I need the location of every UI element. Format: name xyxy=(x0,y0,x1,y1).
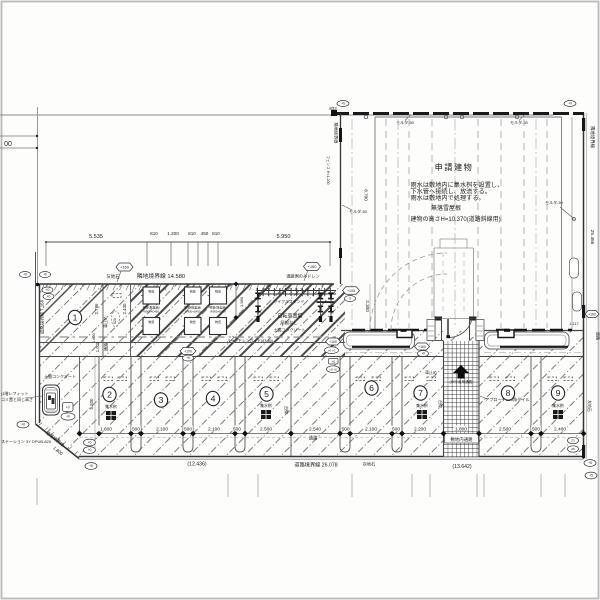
svg-text:サイクルスタンド: サイクルスタンド xyxy=(274,299,305,304)
svg-text:+5: +5 xyxy=(589,474,593,478)
svg-text:隣地境界線 14.580: 隣地境界線 14.580 xyxy=(137,272,185,280)
svg-text:+0: +0 xyxy=(88,448,92,452)
svg-text:5.535: 5.535 xyxy=(89,234,103,240)
svg-text:通路: 通路 xyxy=(103,342,110,351)
svg-text:+0 +0: +0 +0 xyxy=(328,348,336,352)
svg-text:+160: +160 xyxy=(588,312,596,316)
svg-text:白線: 白線 xyxy=(284,406,289,414)
svg-text:物置: 物置 xyxy=(215,319,221,324)
svg-text:土間コンクリート: 土間コンクリート xyxy=(44,373,76,379)
svg-text:+160: +160 xyxy=(329,340,337,344)
svg-text:2.300: 2.300 xyxy=(365,300,370,312)
svg-text:道路境界線 26.078: 道路境界線 26.078 xyxy=(294,461,337,469)
svg-text:+0: +0 xyxy=(88,441,92,445)
svg-text:物置: 物置 xyxy=(190,289,196,294)
svg-text:+0: +0 xyxy=(66,406,70,410)
svg-text:車止め: 車止め xyxy=(103,316,108,328)
svg-text:(歩行者用通路): (歩行者用通路) xyxy=(450,379,474,384)
svg-text:1.800: 1.800 xyxy=(92,333,96,343)
svg-text:2.200: 2.200 xyxy=(414,426,426,432)
svg-text:500: 500 xyxy=(132,426,140,432)
svg-text:2.500: 2.500 xyxy=(499,426,511,432)
svg-text:+0: +0 xyxy=(66,415,70,419)
svg-text:+0: +0 xyxy=(186,356,190,360)
svg-text:集水桝: 集水桝 xyxy=(260,403,272,408)
svg-text:1.117: 1.117 xyxy=(569,322,578,326)
svg-text:W900×D450: W900×D450 xyxy=(210,310,226,314)
svg-text:500: 500 xyxy=(341,426,349,432)
svg-text:2.540: 2.540 xyxy=(309,426,321,432)
svg-text:(13.642): (13.642) xyxy=(452,464,472,470)
svg-text:W900×D450: W900×D450 xyxy=(143,310,159,314)
svg-text:7: 7 xyxy=(418,388,423,398)
svg-text:Z3: Z3 xyxy=(571,439,575,443)
svg-text:集水桝: 集水桝 xyxy=(416,403,428,408)
svg-text:+0: +0 xyxy=(331,360,335,364)
svg-text:Z6: Z6 xyxy=(571,447,575,451)
svg-text:道路側のみドレン: 道路側のみドレン xyxy=(286,273,320,280)
svg-text:+0: +0 xyxy=(43,273,47,277)
svg-text:500: 500 xyxy=(184,426,192,432)
svg-text:810: 810 xyxy=(150,231,158,236)
svg-text:+160: +160 xyxy=(418,345,426,349)
svg-text:1.600: 1.600 xyxy=(100,426,112,432)
svg-text:2.430: 2.430 xyxy=(122,303,127,315)
svg-text:25.456: 25.456 xyxy=(589,230,595,245)
svg-text:灰地石: 灰地石 xyxy=(106,273,120,280)
svg-text:00: 00 xyxy=(4,141,12,148)
svg-text:820: 820 xyxy=(113,318,117,324)
svg-text:810: 810 xyxy=(212,231,220,236)
svg-text:+100: +100 xyxy=(347,289,355,293)
svg-text:物置: 物置 xyxy=(148,319,154,324)
svg-text:雨水は敷地内で処理する。: 雨水は敷地内で処理する。 xyxy=(411,194,485,202)
svg-text:敷地内通路: 敷地内通路 xyxy=(451,436,474,443)
svg-text:2.500: 2.500 xyxy=(260,426,272,432)
svg-text:+100: +100 xyxy=(184,349,192,353)
svg-text:道路境界線 7.168: 道路境界線 7.168 xyxy=(39,299,46,334)
svg-text:500: 500 xyxy=(233,426,241,432)
svg-text:1.200: 1.200 xyxy=(167,231,179,236)
svg-text:833: 833 xyxy=(329,106,337,111)
svg-text:モルタ-50: モルタ-50 xyxy=(545,199,564,205)
svg-text:+160: +160 xyxy=(120,264,130,269)
svg-text:1.800: 1.800 xyxy=(455,426,467,432)
svg-text:0: 0 xyxy=(349,297,351,301)
svg-text:2.786: 2.786 xyxy=(94,303,99,315)
svg-text:自転車置場: 自転車置場 xyxy=(277,313,302,320)
svg-text:8: 8 xyxy=(506,388,511,398)
svg-text:3: 3 xyxy=(159,395,164,405)
svg-text:+0: +0 xyxy=(568,102,572,106)
svg-text:6: 6 xyxy=(369,383,374,393)
svg-text:(1階レフィット: (1階レフィット xyxy=(1,390,28,396)
svg-text:建物の高さH=10.370(道路斜線用): 建物の高さH=10.370(道路斜線用) xyxy=(411,215,501,223)
svg-text:2.100: 2.100 xyxy=(365,426,377,432)
svg-text:+5: +5 xyxy=(588,461,592,465)
svg-text:屋根なし: 屋根なし xyxy=(280,320,298,327)
svg-text:+0: +0 xyxy=(21,423,25,427)
svg-text:フェンス H=1.200: フェンス H=1.200 xyxy=(326,156,331,185)
svg-text:隣地境界線: 隣地境界線 xyxy=(333,123,340,145)
svg-text:2: 2 xyxy=(107,390,112,400)
svg-text:土間コンクリート: 土間コンクリート xyxy=(274,327,306,333)
svg-text:+160: +160 xyxy=(307,264,317,269)
svg-text:灰地石: 灰地石 xyxy=(587,400,592,412)
svg-text:2.400: 2.400 xyxy=(554,426,566,432)
svg-text:+0 +0: +0 +0 xyxy=(329,367,337,371)
svg-text:無落雪屋根: 無落雪屋根 xyxy=(431,204,461,212)
svg-text:W900×D450: W900×D450 xyxy=(185,310,201,314)
svg-text:8.700: 8.700 xyxy=(364,189,369,201)
svg-text:ステーション 3Y DPUB-820: ステーション 3Y DPUB-820 xyxy=(1,438,52,444)
svg-text:白線: 白線 xyxy=(438,400,443,408)
svg-text:5.950: 5.950 xyxy=(277,234,291,240)
svg-text:集水桝: 集水桝 xyxy=(552,403,564,408)
svg-text:+5: +5 xyxy=(89,464,93,468)
svg-text:2.100: 2.100 xyxy=(208,426,220,432)
svg-text:+0: +0 xyxy=(341,102,345,106)
svg-text:1.980: 1.980 xyxy=(239,296,244,307)
svg-text:道路: 道路 xyxy=(596,332,600,340)
svg-text:灰地石: 灰地石 xyxy=(363,461,376,468)
svg-text:物置: 物置 xyxy=(148,289,154,294)
svg-text:物置: 物置 xyxy=(190,319,196,324)
svg-text:810: 810 xyxy=(188,231,196,236)
svg-text:1: 1 xyxy=(73,313,78,323)
svg-text:通路: 通路 xyxy=(309,435,318,442)
svg-text:(12.436): (12.436) xyxy=(187,462,207,468)
svg-text:+0: +0 xyxy=(46,288,50,292)
svg-text:申請建物: 申請建物 xyxy=(435,162,474,172)
svg-text:隣地境界線: 隣地境界線 xyxy=(589,126,596,149)
svg-text:5.200: 5.200 xyxy=(89,398,94,410)
svg-text:2.100: 2.100 xyxy=(156,426,168,432)
svg-text:+0: +0 xyxy=(23,273,27,277)
svg-text:5: 5 xyxy=(264,389,269,399)
svg-text:車止め: 車止め xyxy=(425,370,437,375)
svg-text:+0: +0 xyxy=(47,295,51,299)
svg-text:9: 9 xyxy=(556,388,561,398)
svg-text:物置: 物置 xyxy=(215,289,221,294)
svg-text:ゴミ置と同じ高さ: ゴミ置と同じ高さ xyxy=(1,396,33,402)
svg-text:ルーフドレンガイド(8T-80): ルーフドレンガイド(8T-80) xyxy=(227,338,274,343)
svg-text:4: 4 xyxy=(211,394,216,404)
svg-text:500: 500 xyxy=(392,426,400,432)
svg-text:+0: +0 xyxy=(421,352,425,356)
svg-text:450: 450 xyxy=(201,231,209,236)
svg-text:集水桝: 集水桝 xyxy=(105,404,117,409)
svg-text:500: 500 xyxy=(532,426,540,432)
